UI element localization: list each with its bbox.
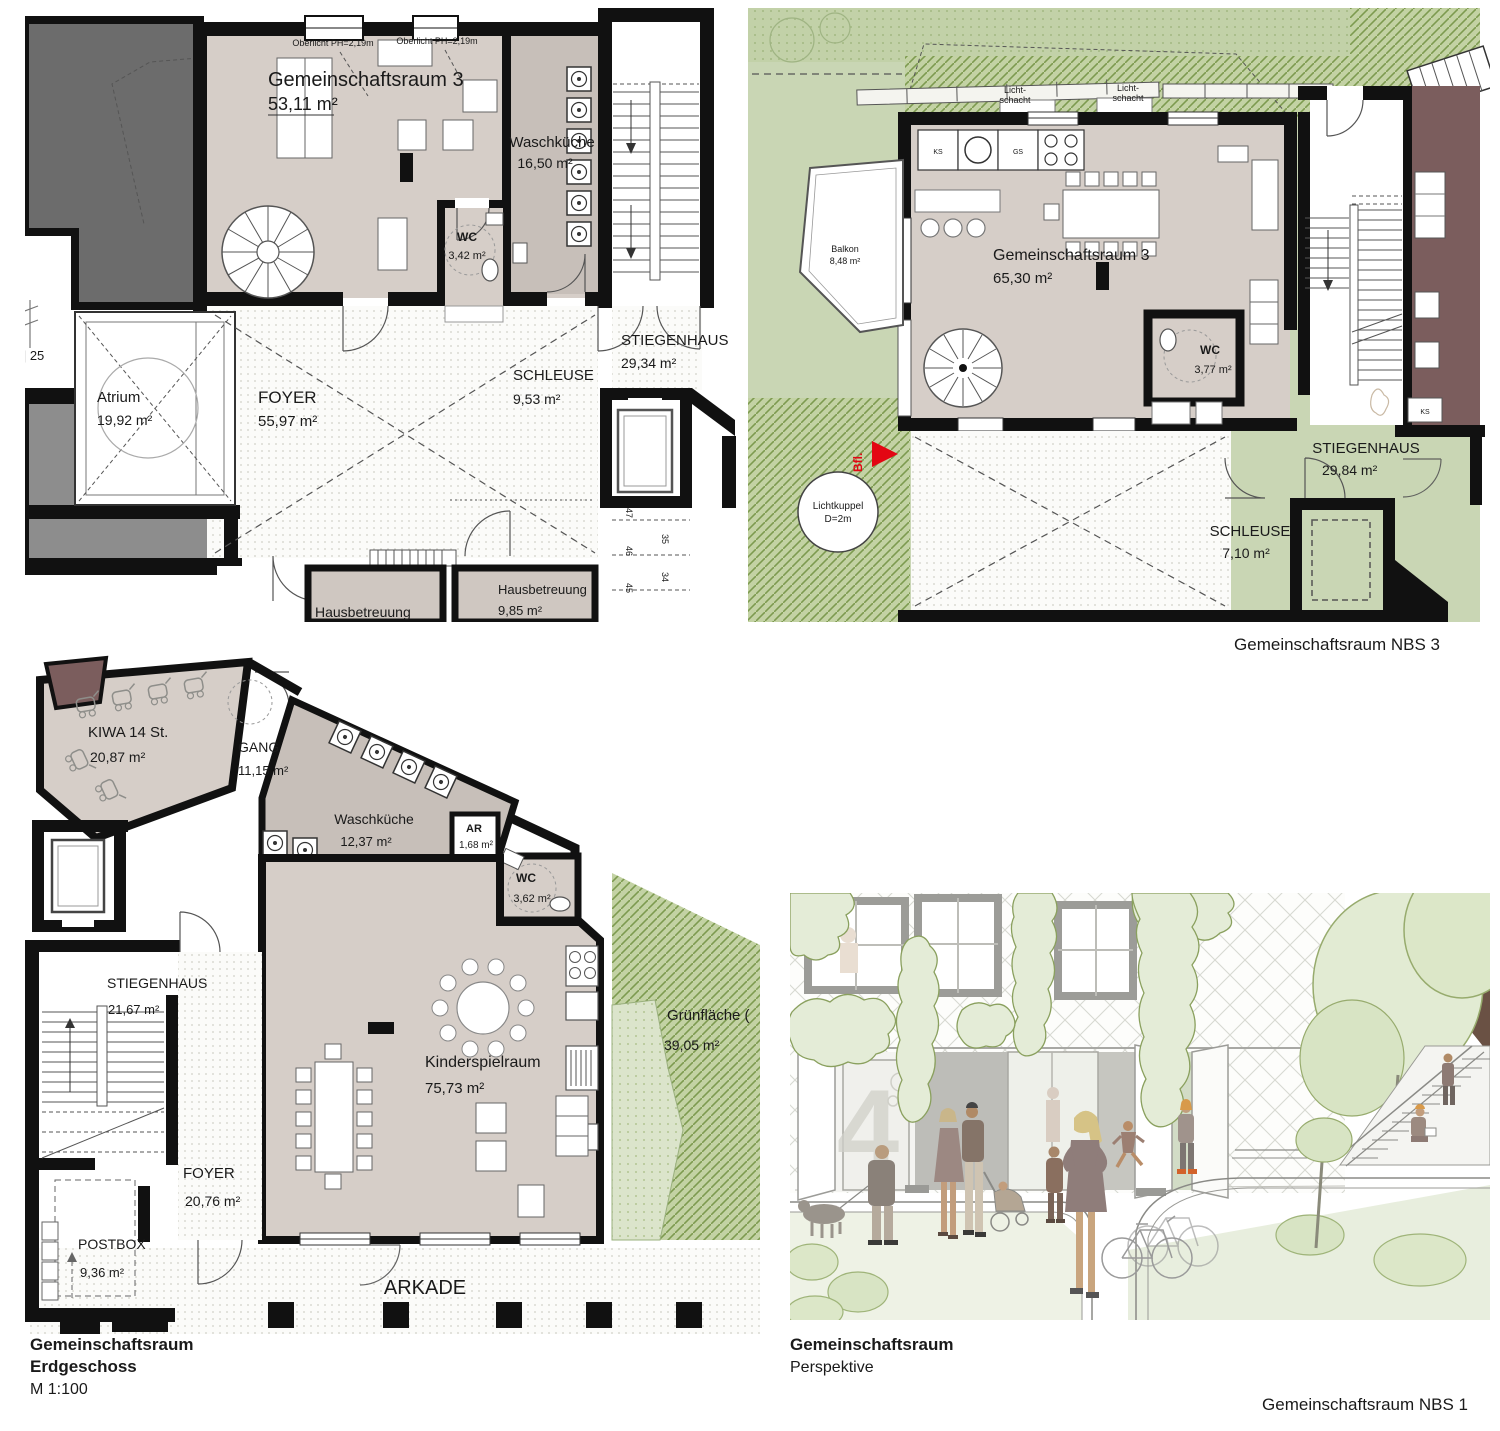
label-gruenflaeche-area: 39,05 m² [664,1037,720,1053]
label-postbox-area: 9,36 m² [80,1265,125,1280]
label-waschkueche-eg: Waschküche [334,811,414,827]
caption-nbs1: Gemeinschaftsraum NBS 1 [1262,1395,1468,1414]
caption-persp-title: Gemeinschaftsraum [790,1335,953,1354]
stairwell-nbs3 [1305,86,1403,425]
spiral-stair-icon [222,206,314,298]
wall-stub [368,1022,394,1034]
label-ar-area: 1,68 m² [459,840,494,851]
label-stiegenhaus-area: 29,34 m² [621,355,677,371]
spiral-stair-icon [924,329,1002,407]
architectural-sheet: 47 46 45 35 34 Oberlicht PH=2,19m Oberli… [0,0,1500,1431]
label-foyer-area: 55,97 m² [258,413,317,430]
label-schleuse-nbs3-area: 7,10 m² [1222,545,1270,561]
label-lichtschacht-1b: schacht [999,95,1031,105]
label-stiegenhaus-eg: STIEGENHAUS [107,975,207,991]
margin [1480,8,1490,622]
label-stiegenhaus: STIEGENHAUS [621,332,729,349]
door-foyer-top [180,912,220,952]
elevator [618,398,672,492]
label-gemeinschaftsraum-nbs3: Gemeinschaftsraum 3 [993,247,1150,264]
wc-room-eg [500,848,578,920]
floorplan-erdgeschoss: KIWA 14 St. 20,87 m² GANG 11,15 m² Wasch… [25,658,760,1334]
stairs-eg [42,1006,164,1158]
caption-eg-scale: M 1:100 [30,1381,88,1398]
label-wc-eg: WC [516,871,536,885]
label-waschkueche-area: 16,50 m² [517,155,573,171]
label-dimension: 5 | 25 [12,348,44,363]
label-schleuse-area: 9,53 m² [513,391,561,407]
caption-eg-title: Gemeinschaftsraum [30,1335,193,1354]
label-postbox: POSTBOX [78,1236,146,1252]
room-ar [452,814,498,858]
label-stiegenhaus-nbs3-area: 29,84 m² [1322,462,1378,478]
elevator-eg [52,840,104,927]
label-ar: AR [466,823,482,835]
label-wc-eg-area: 3,62 m² [513,893,551,905]
neighbor-maroon [46,658,106,708]
stair-number: 34 [660,572,670,582]
label-wc-nbs3: WC [1200,343,1220,357]
label-gang: GANG [238,739,279,755]
atrium-void [75,312,235,505]
label-lichtkuppel-d: D=2m [825,514,852,525]
stair-number: 46 [624,546,634,556]
label-bfl: Bfl. [851,453,865,472]
label-gang-area: 11,15 m² [238,763,289,778]
label-foyer-eg-area: 20,76 m² [185,1193,241,1209]
label-schleuse: SCHLEUSE [513,367,594,384]
label-foyer-eg: FOYER [183,1165,235,1182]
lichtkuppel-icon [798,472,878,552]
neighbor-apartment [1408,86,1480,425]
label-stiegenhaus-nbs3: STIEGENHAUS [1312,440,1420,457]
caption-nbs3: Gemeinschaftsraum NBS 3 [1234,635,1440,654]
stairwell [613,82,699,280]
label-balkon: Balkon [831,244,859,254]
label-balkon-area: 8,48 m² [830,256,861,266]
label-oberlicht-2: Oberlicht PH=2,19m [396,36,477,46]
neighbor-building-mass [25,20,200,306]
label-stiegenhaus-eg-area: 21,67 m² [108,1002,160,1017]
label-foyer: FOYER [258,388,317,407]
caption-eg-floor: Erdgeschoss [30,1357,137,1376]
label-waschkueche: Waschküche [509,134,594,151]
label-atrium: Atrium [97,389,140,406]
label-hausbetreuung-1: Hausbetreuung [315,604,411,620]
label-kiwa-area: 20,87 m² [90,749,146,765]
label-oberlicht-1: Oberlicht PH=2,19m [292,38,373,48]
stair-numbering: 47 46 45 35 34 [612,508,690,593]
label-gs: GS [1013,149,1023,156]
label-lichtschacht-2b: schacht [1112,93,1144,103]
label-hausbetreuung-2: Hausbetreuung [498,582,587,597]
caption-persp-sub: Perspektive [790,1359,874,1376]
label-wc-area: 3,42 m² [448,250,486,262]
label-kinderspielraum: Kinderspielraum [425,1054,541,1071]
south-windows [300,1233,580,1245]
upper-windows [808,898,1133,996]
column [1096,262,1109,290]
label-gruenflaeche: Grünfläche ( [667,1007,750,1024]
label-kiwa: KIWA 14 St. [88,724,168,741]
label-arkade: ARKADE [384,1277,466,1299]
sheet-drawing: 47 46 45 35 34 Oberlicht PH=2,19m Oberli… [0,0,1500,1431]
survey-marker-icon [22,300,38,348]
column [400,153,413,182]
label-lichtschacht-2: Licht- [1117,83,1139,93]
stair-number: 47 [624,508,634,518]
label-hausbetreuung-area: 9,85 m² [498,603,543,618]
bench [370,550,456,566]
stair-number: 35 [660,534,670,544]
label-wc: WC [457,230,477,244]
label-schleuse-nbs3: SCHLEUSE [1210,523,1291,540]
perspective-rendering: 4 [786,862,1500,1328]
label-ks: KS [933,149,943,156]
label-atrium-area: 19,92 m² [97,412,153,428]
floorplan-nbs3: Licht- schacht Licht- schacht KS GS Balk… [748,8,1496,622]
floorplan-regular-floor: 47 46 45 35 34 Oberlicht PH=2,19m Oberli… [12,8,736,622]
label-gemeinschaftsraum: Gemeinschaftsraum 3 [268,69,464,91]
label-gemeinschaftsraum-area: 53,11 m² [268,94,338,114]
label-ks-neighbor: KS [1420,409,1430,416]
label-gemeinschaftsraum-nbs3-area: 65,30 m² [993,270,1052,287]
label-lichtkuppel: Lichtkuppel [813,501,864,512]
label-kinderspielraum-area: 75,73 m² [425,1080,484,1097]
label-waschkueche-eg-area: 12,37 m² [340,834,392,849]
stair-number: 45 [624,583,634,593]
label-lichtschacht-1: Licht- [1004,85,1026,95]
label-wc-nbs3-area: 3,77 m² [1194,364,1232,376]
